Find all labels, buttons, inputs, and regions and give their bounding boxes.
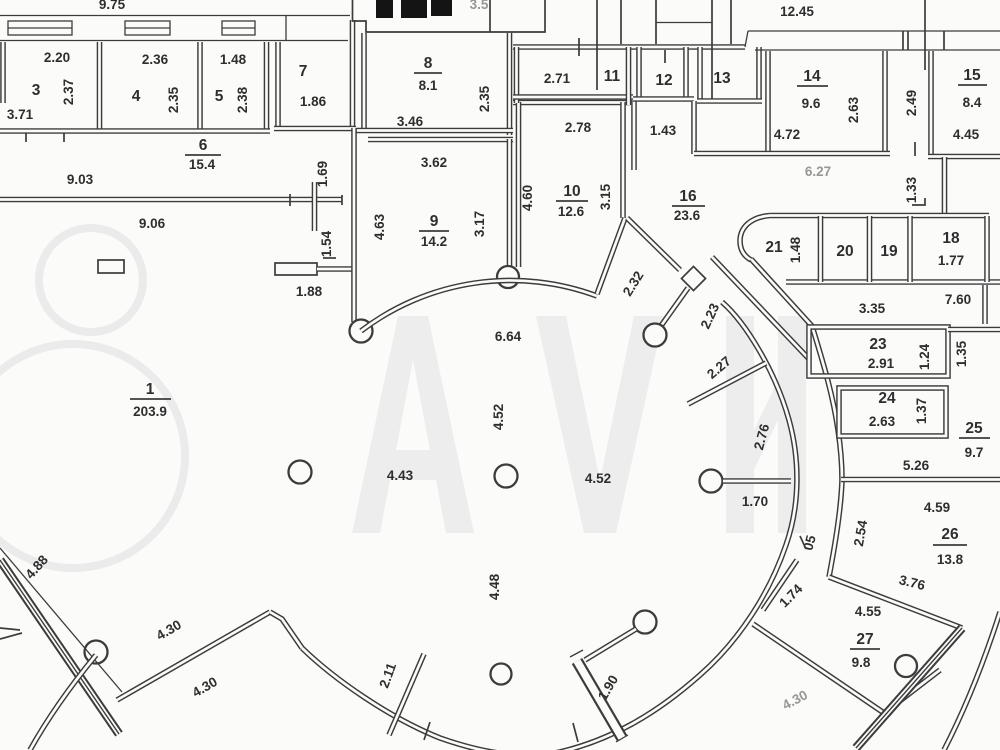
svg-text:3.15: 3.15 (598, 183, 613, 210)
svg-text:1.33: 1.33 (904, 176, 919, 203)
svg-text:15: 15 (963, 67, 981, 84)
svg-text:203.9: 203.9 (133, 404, 167, 419)
svg-text:16: 16 (679, 188, 697, 205)
svg-text:3: 3 (32, 82, 41, 99)
svg-text:2.49: 2.49 (904, 90, 919, 116)
svg-text:2.36: 2.36 (142, 52, 169, 67)
svg-text:2.63: 2.63 (869, 414, 896, 429)
svg-text:7: 7 (299, 63, 308, 80)
svg-text:3.17: 3.17 (472, 211, 487, 237)
svg-text:2.35: 2.35 (166, 86, 181, 113)
svg-text:9.8: 9.8 (852, 655, 871, 670)
svg-text:14: 14 (803, 68, 821, 85)
svg-text:1.37: 1.37 (914, 398, 929, 424)
svg-text:1.48: 1.48 (220, 52, 247, 67)
svg-text:23.6: 23.6 (674, 208, 701, 223)
svg-text:4.60: 4.60 (520, 185, 535, 211)
svg-text:24: 24 (878, 390, 896, 407)
svg-text:4.45: 4.45 (953, 127, 980, 142)
svg-text:9.03: 9.03 (67, 172, 94, 187)
svg-text:4.52: 4.52 (491, 404, 506, 430)
svg-text:2.38: 2.38 (235, 86, 250, 113)
svg-text:3.71: 3.71 (7, 107, 34, 122)
svg-text:1.70: 1.70 (742, 494, 768, 509)
svg-text:4.52: 4.52 (585, 471, 611, 486)
svg-text:4.55: 4.55 (855, 604, 882, 619)
svg-text:14.2: 14.2 (421, 234, 447, 249)
svg-text:11: 11 (604, 68, 621, 85)
svg-text:1.35: 1.35 (954, 340, 969, 367)
svg-text:5: 5 (215, 88, 224, 105)
svg-text:2.78: 2.78 (565, 120, 592, 135)
svg-text:1: 1 (146, 381, 155, 398)
svg-text:2.63: 2.63 (846, 96, 861, 123)
svg-text:3.46: 3.46 (397, 114, 424, 129)
svg-text:8: 8 (424, 55, 433, 72)
svg-text:1.86: 1.86 (300, 94, 327, 109)
svg-text:9: 9 (430, 213, 439, 230)
svg-text:1.43: 1.43 (650, 123, 677, 138)
svg-text:13.8: 13.8 (937, 552, 964, 567)
svg-text:2.71: 2.71 (544, 71, 571, 86)
svg-text:3.35: 3.35 (859, 301, 886, 316)
svg-text:2.91: 2.91 (868, 356, 895, 371)
svg-text:1.88: 1.88 (296, 284, 323, 299)
svg-text:12.45: 12.45 (780, 4, 814, 19)
svg-text:4.43: 4.43 (387, 468, 414, 483)
svg-text:2.37: 2.37 (61, 79, 76, 105)
svg-text:4.63: 4.63 (372, 213, 387, 240)
svg-text:6: 6 (199, 137, 208, 154)
svg-text:12.6: 12.6 (558, 204, 585, 219)
svg-text:3.5: 3.5 (470, 0, 489, 12)
svg-text:10: 10 (563, 183, 580, 200)
svg-text:18: 18 (942, 230, 960, 247)
svg-text:6.64: 6.64 (495, 329, 522, 344)
svg-text:19: 19 (880, 243, 898, 260)
svg-text:8.4: 8.4 (963, 95, 982, 110)
svg-text:21: 21 (765, 239, 783, 256)
svg-text:2.20: 2.20 (44, 50, 70, 65)
svg-text:1.24: 1.24 (917, 343, 932, 370)
svg-text:9.6: 9.6 (802, 96, 821, 111)
svg-text:1.54: 1.54 (319, 230, 334, 257)
svg-text:25: 25 (965, 420, 983, 437)
svg-text:8.1: 8.1 (419, 78, 438, 93)
svg-text:13: 13 (713, 70, 731, 87)
svg-text:3.62: 3.62 (421, 155, 447, 170)
svg-text:15.4: 15.4 (189, 157, 216, 172)
svg-text:5.26: 5.26 (903, 458, 930, 473)
svg-text:9.75: 9.75 (99, 0, 126, 12)
svg-text:2.35: 2.35 (477, 85, 492, 112)
svg-text:6.27: 6.27 (805, 164, 831, 179)
svg-text:26: 26 (941, 526, 959, 543)
svg-text:27: 27 (856, 631, 873, 648)
svg-text:1.48: 1.48 (788, 236, 803, 263)
svg-text:20: 20 (836, 243, 853, 260)
svg-text:23: 23 (869, 336, 887, 353)
svg-text:12: 12 (655, 72, 672, 89)
svg-text:9.7: 9.7 (965, 445, 984, 460)
svg-text:4.59: 4.59 (924, 500, 950, 515)
svg-text:4.72: 4.72 (774, 127, 800, 142)
svg-text:1.69: 1.69 (315, 161, 330, 187)
svg-text:7.60: 7.60 (945, 292, 971, 307)
svg-text:9.06: 9.06 (139, 216, 166, 231)
svg-text:1.77: 1.77 (938, 253, 964, 268)
svg-text:4.48: 4.48 (487, 573, 502, 600)
svg-text:4: 4 (132, 88, 141, 105)
